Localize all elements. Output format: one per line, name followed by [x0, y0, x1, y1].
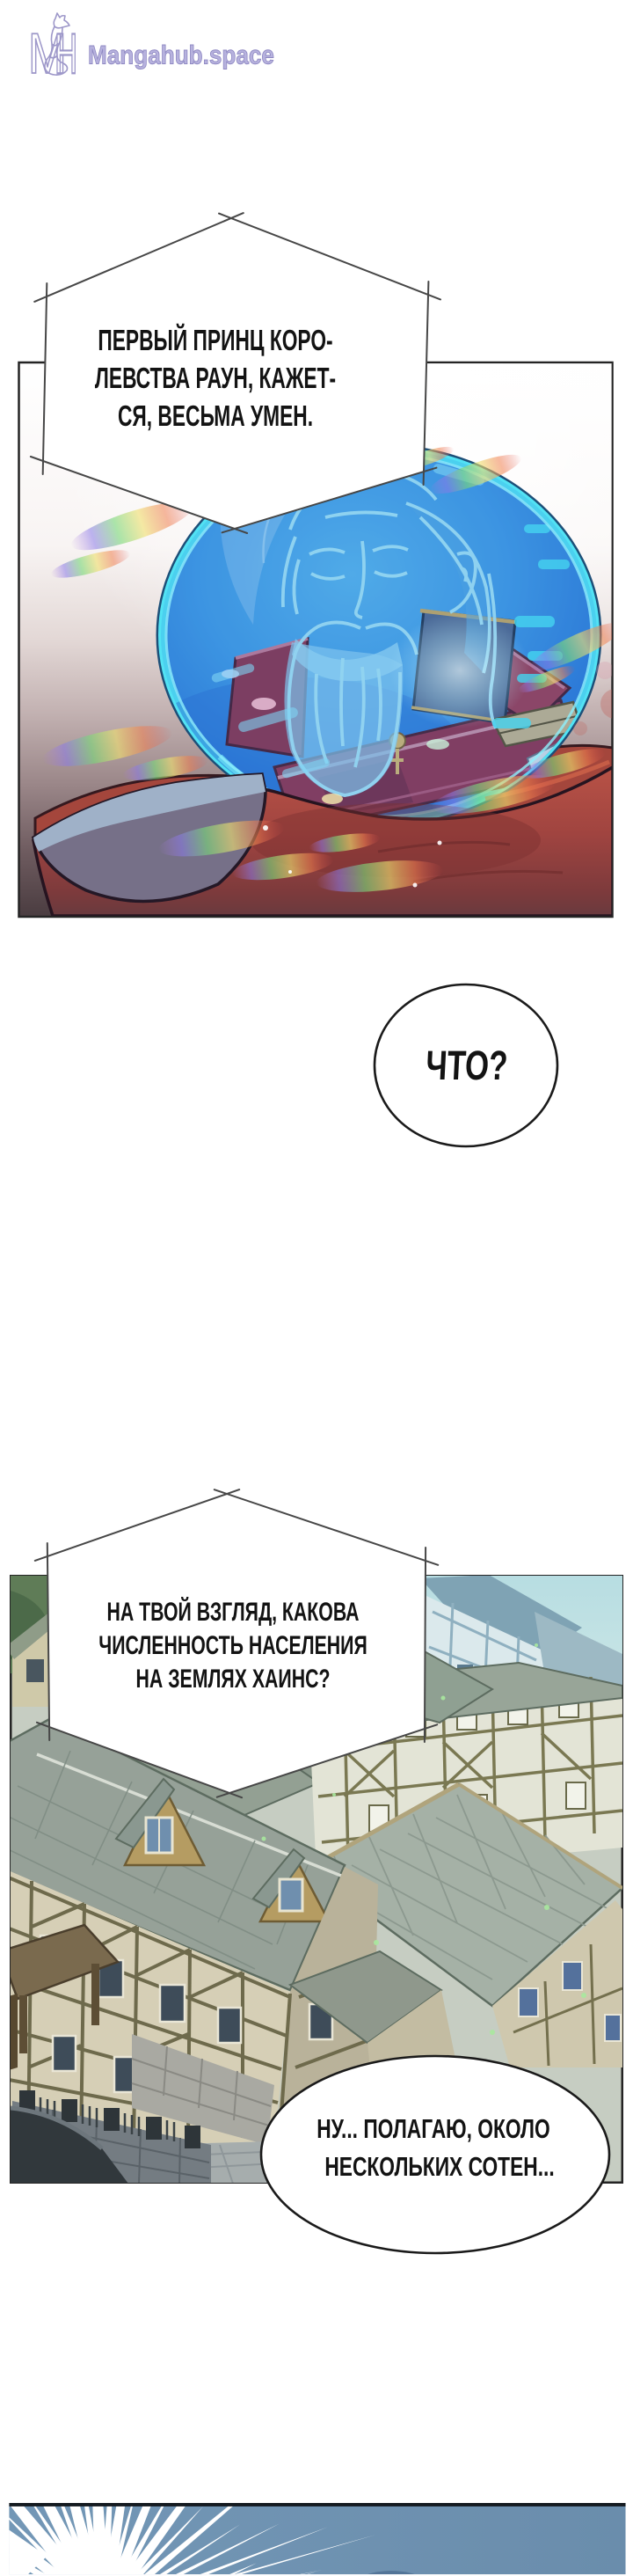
svg-text:НЕСКОЛЬКИХ СОТЕН...: НЕСКОЛЬКИХ СОТЕН... — [324, 2151, 554, 2182]
svg-text:НА ТВОЙ ВЗГЛЯД, КАКОВА: НА ТВОЙ ВЗГЛЯД, КАКОВА — [106, 1596, 359, 1627]
svg-text:ЧТО?: ЧТО? — [425, 1043, 509, 1088]
svg-text:СЯ, ВЕСЬМА УМЕН.: СЯ, ВЕСЬМА УМЕН. — [118, 400, 313, 433]
svg-text:НУ... ПОЛАГАЮ, ОКОЛО: НУ... ПОЛАГАЮ, ОКОЛО — [316, 2113, 550, 2144]
svg-text:ЛЕВСТВА РАУН, КАЖЕТ-: ЛЕВСТВА РАУН, КАЖЕТ- — [95, 362, 336, 395]
svg-text:НА ЗЕМЛЯХ ХАИНС?: НА ЗЕМЛЯХ ХАИНС? — [136, 1663, 331, 1694]
svg-text:ЧИСЛЕННОСТЬ НАСЕЛЕНИЯ: ЧИСЛЕННОСТЬ НАСЕЛЕНИЯ — [98, 1629, 367, 1660]
svg-text:ПЕРВЫЙ ПРИНЦ КОРО-: ПЕРВЫЙ ПРИНЦ КОРО- — [98, 325, 332, 357]
